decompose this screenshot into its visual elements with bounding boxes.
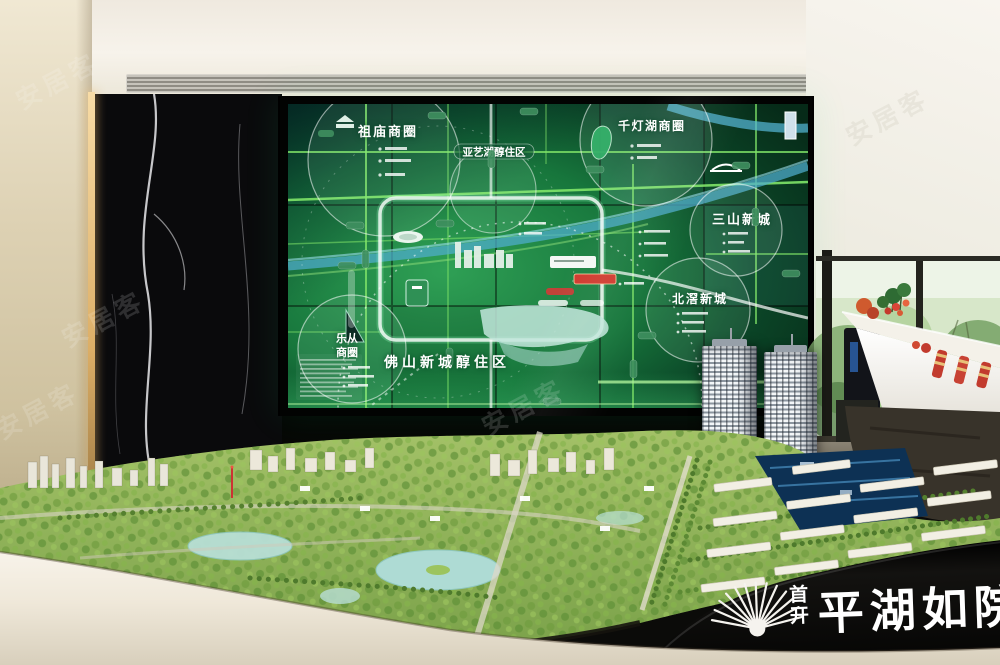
district-label: 北滘新城 — [672, 291, 728, 306]
district-label: 千灯湖商圈 — [618, 118, 686, 133]
vertical-road-strip — [348, 270, 355, 328]
sales-gallery-photo: 祖庙商圈 千灯湖商圈 三山新城 — [0, 0, 1000, 665]
district-label-foshan: 佛山新城醇住区 — [383, 354, 510, 371]
red-pill — [546, 288, 574, 295]
brand-char-bottom: 开 — [790, 605, 810, 628]
project-name-sign: 平湖如院 — [817, 579, 1000, 640]
brand-char-top: 首 — [789, 583, 809, 607]
district-label: 祖庙商圈 — [357, 124, 418, 140]
project-location-badge — [574, 274, 616, 284]
district-label: 三山新城 — [712, 212, 772, 228]
park-icon — [406, 280, 428, 306]
city-scale-model: 首 开 平湖如院 — [0, 398, 1000, 665]
district-label: 乐从 — [336, 331, 358, 345]
highrise-icon — [785, 112, 796, 139]
